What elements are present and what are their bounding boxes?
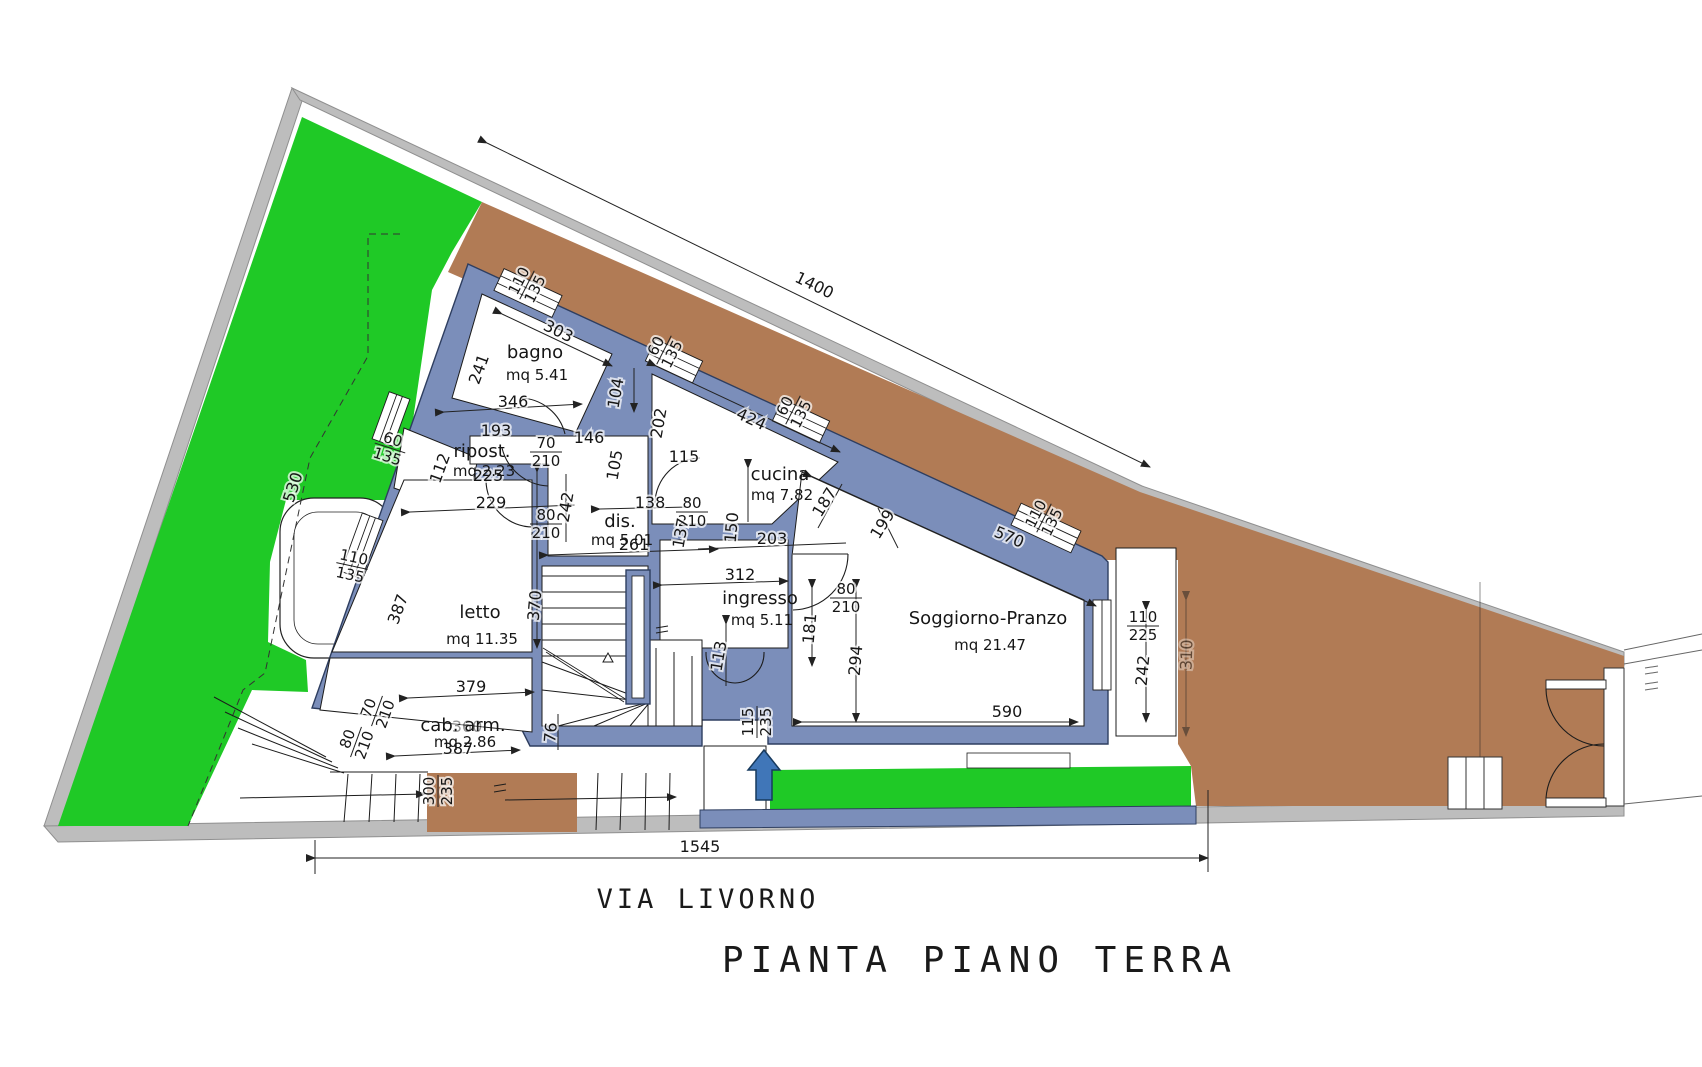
window-size-height: 210 (532, 452, 561, 470)
room-area-label: mq 5.11 (731, 611, 793, 629)
dimension-label: 242 (1132, 654, 1154, 686)
dimension-label: 310 (1176, 639, 1196, 670)
room-area-label: mq 5.41 (506, 366, 568, 384)
dimension-label: 181 (799, 612, 821, 644)
window-size-width: 115 (739, 708, 757, 737)
room-name-label: ripost. (454, 441, 511, 462)
window-size-height: 235 (438, 777, 456, 806)
room-name-label: cucina (751, 464, 810, 485)
dimension-label: 590 (992, 702, 1023, 721)
gate-leaf-top (1546, 680, 1606, 689)
floor-plan-drawing: 1101356013560135110135601351101351102251… (0, 0, 1702, 1067)
dimension-label: 203 (757, 529, 788, 548)
window-size-height: 235 (757, 708, 775, 737)
dimension-label: 1545 (680, 837, 721, 856)
window-size-width: 300 (420, 777, 438, 806)
room-name-label: dis. (604, 511, 636, 532)
window-size-width: 70 (536, 434, 555, 452)
room-name-label: bagno (507, 342, 563, 363)
room-area-label: mq 7.82 (751, 486, 813, 504)
street-strip-notch (967, 753, 1070, 768)
window-size-height: 225 (1129, 626, 1158, 644)
window-size-width: 80 (536, 506, 555, 524)
dimension-label: 115 (669, 447, 700, 466)
room-area-label: mq 21.47 (954, 636, 1026, 654)
room-name-label: letto (459, 602, 500, 623)
dimension-label: 76 (540, 722, 561, 744)
room-area-label: mq 2.86 (434, 733, 496, 751)
room-name-label: Soggiorno-Pranzo (909, 608, 1067, 629)
courtyard-steps-right (1448, 757, 1502, 809)
window-icon (1093, 600, 1111, 690)
dimension-label: 150 (721, 511, 743, 543)
street-curb (700, 806, 1196, 828)
dimension-label: 312 (725, 565, 756, 584)
room-area-label: mq 5.01 (591, 531, 653, 549)
dimension-label: 294 (845, 644, 867, 676)
room-area-label: mq 11.35 (446, 630, 518, 648)
window-size-height: 210 (532, 524, 561, 542)
street-name: VIA LIVORNO (597, 884, 820, 915)
gate-pier (1604, 668, 1624, 806)
room-name-label: ingresso (722, 588, 798, 609)
window-size-label: 110225 (1127, 608, 1159, 644)
dimension-label: 146 (574, 428, 605, 447)
window-size-width: 110 (1129, 608, 1158, 626)
dimension-label: 138 (635, 493, 666, 512)
window-size-height: 210 (832, 598, 861, 616)
dimension-label: 370 (524, 589, 546, 621)
floor-plan-page: 1101356013560135110135601351101351102251… (0, 0, 1702, 1067)
dimension-label: 193 (481, 421, 512, 440)
room-area-label: mq 2.23 (453, 462, 515, 480)
window-size-width: 80 (682, 494, 701, 512)
dimension-label: 379 (456, 677, 487, 696)
window-size-label: 300235 (420, 775, 456, 807)
dimension-label: 346 (498, 392, 529, 411)
window-size-width: 80 (836, 580, 855, 598)
window-size-label: 115235 (739, 706, 775, 738)
page-title: PIANTA PIANO TERRA (722, 940, 1238, 981)
dimension-label: 229 (476, 493, 507, 512)
gate-leaf-bottom (1546, 798, 1606, 807)
